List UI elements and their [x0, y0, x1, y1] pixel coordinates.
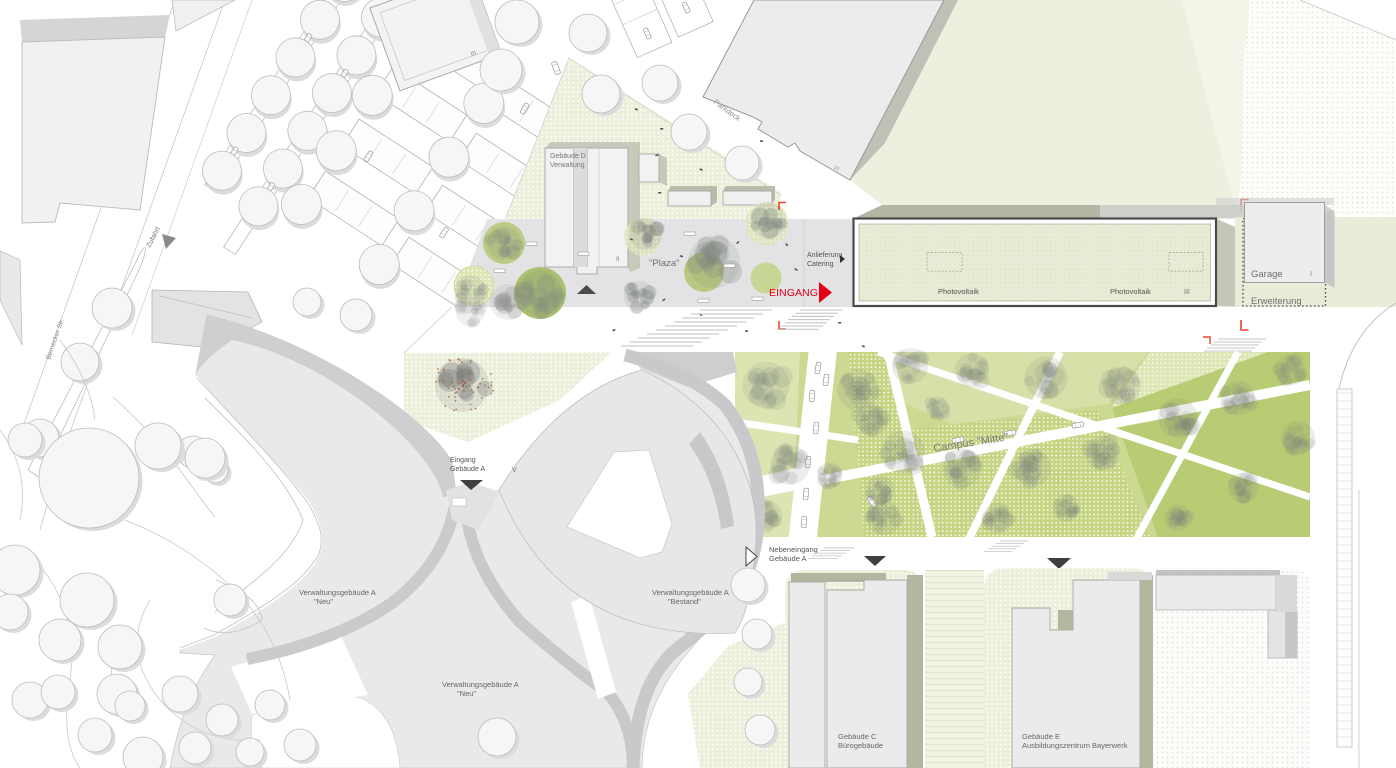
- svg-text:Verwaltungsgebäude A: Verwaltungsgebäude A: [442, 680, 519, 689]
- svg-text:"Neu": "Neu": [457, 689, 476, 698]
- svg-text:Gebäude A: Gebäude A: [450, 466, 485, 473]
- svg-text:Erweiterung: Erweiterung: [1251, 296, 1302, 307]
- svg-text:Zufahrt: Zufahrt: [146, 226, 162, 249]
- svg-text:Anlieferung: Anlieferung: [807, 252, 843, 259]
- svg-text:Garage: Garage: [1251, 269, 1283, 280]
- svg-text:Verwaltungsgebäude A: Verwaltungsgebäude A: [652, 588, 729, 597]
- svg-text:Gebäude C: Gebäude C: [838, 732, 877, 741]
- svg-text:II: II: [616, 256, 620, 263]
- svg-text:"Bestand": "Bestand": [668, 597, 701, 606]
- svg-text:Photovoltaik: Photovoltaik: [1110, 287, 1151, 296]
- svg-text:Gebäude A: Gebäude A: [769, 554, 807, 563]
- svg-text:Ausbildungszentrum Bayerwerk: Ausbildungszentrum Bayerwerk: [1022, 741, 1128, 750]
- svg-text:Verwaltungsgebäude A: Verwaltungsgebäude A: [299, 588, 376, 597]
- svg-text:"Plaza": "Plaza": [649, 258, 680, 269]
- svg-text:Gebäude E: Gebäude E: [1022, 732, 1060, 741]
- svg-text:Photovoltaik: Photovoltaik: [938, 287, 979, 296]
- svg-text:"Neu": "Neu": [314, 597, 333, 606]
- svg-text:EINGANG: EINGANG: [769, 287, 818, 299]
- svg-text:Verwaltung: Verwaltung: [550, 162, 585, 169]
- svg-text:Eingang: Eingang: [450, 457, 476, 464]
- svg-text:Nebeneingang: Nebeneingang: [769, 545, 818, 554]
- svg-text:V: V: [512, 467, 517, 474]
- svg-text:Gebäude D: Gebäude D: [550, 153, 586, 160]
- svg-text:Catering: Catering: [807, 261, 834, 268]
- svg-text:Bürogebäude: Bürogebäude: [838, 741, 883, 750]
- svg-text:I: I: [1310, 269, 1312, 278]
- svg-text:III: III: [1184, 289, 1190, 296]
